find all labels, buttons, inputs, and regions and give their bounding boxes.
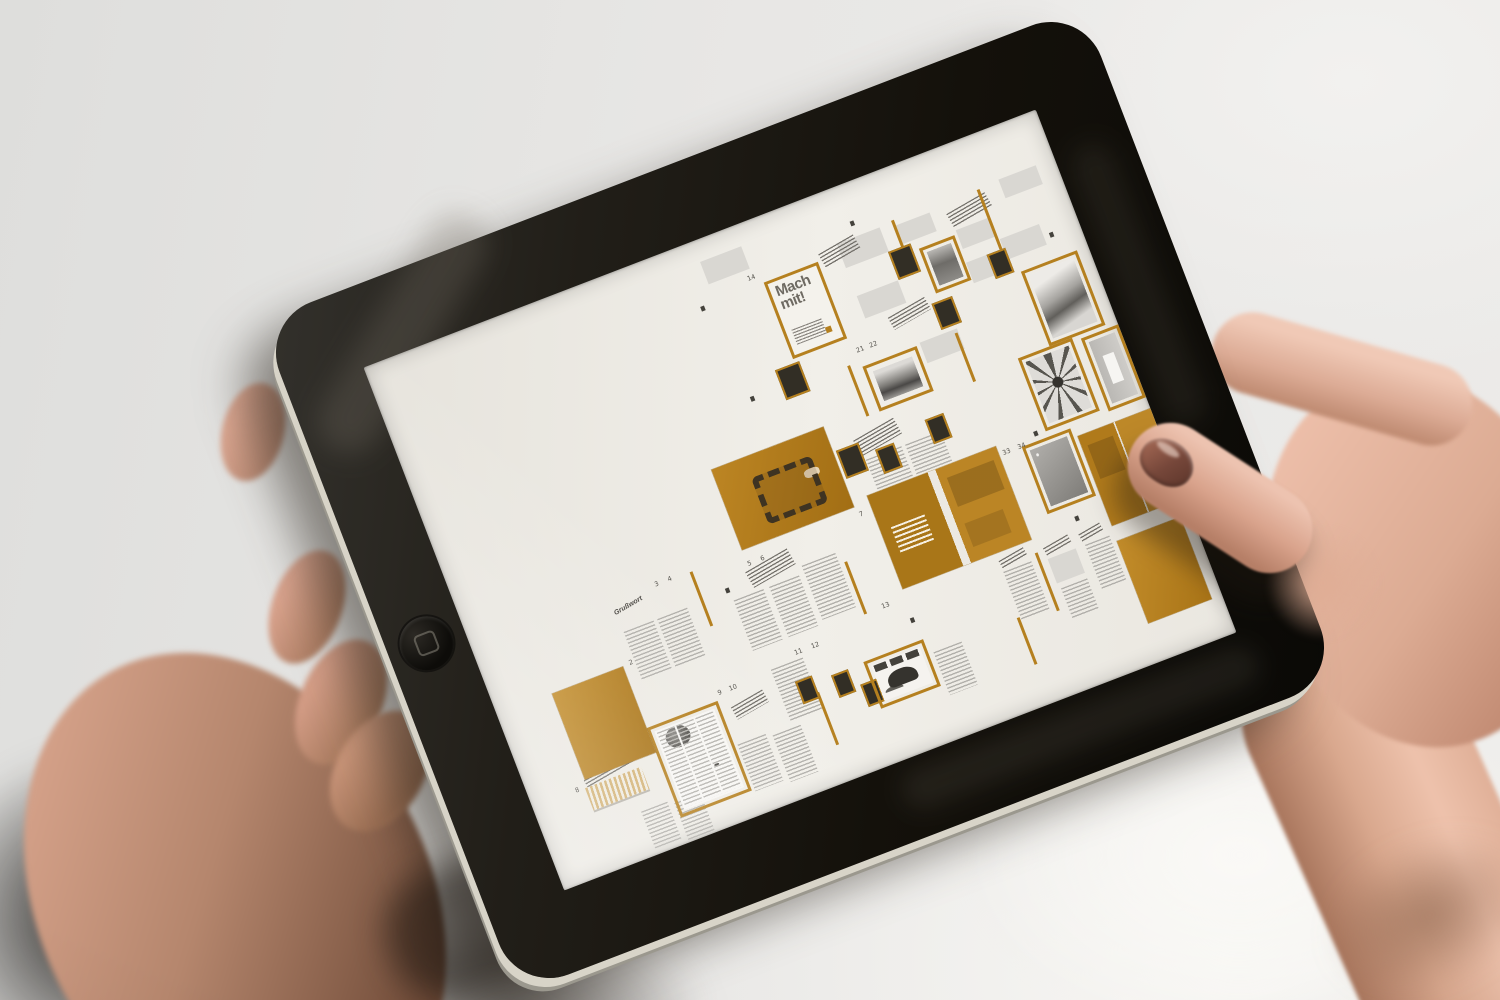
home-button[interactable] xyxy=(392,608,462,678)
thumb-nail xyxy=(1131,429,1202,496)
photo-scene: GrußwortMachmit!142122283456791011121333… xyxy=(0,0,1500,1000)
